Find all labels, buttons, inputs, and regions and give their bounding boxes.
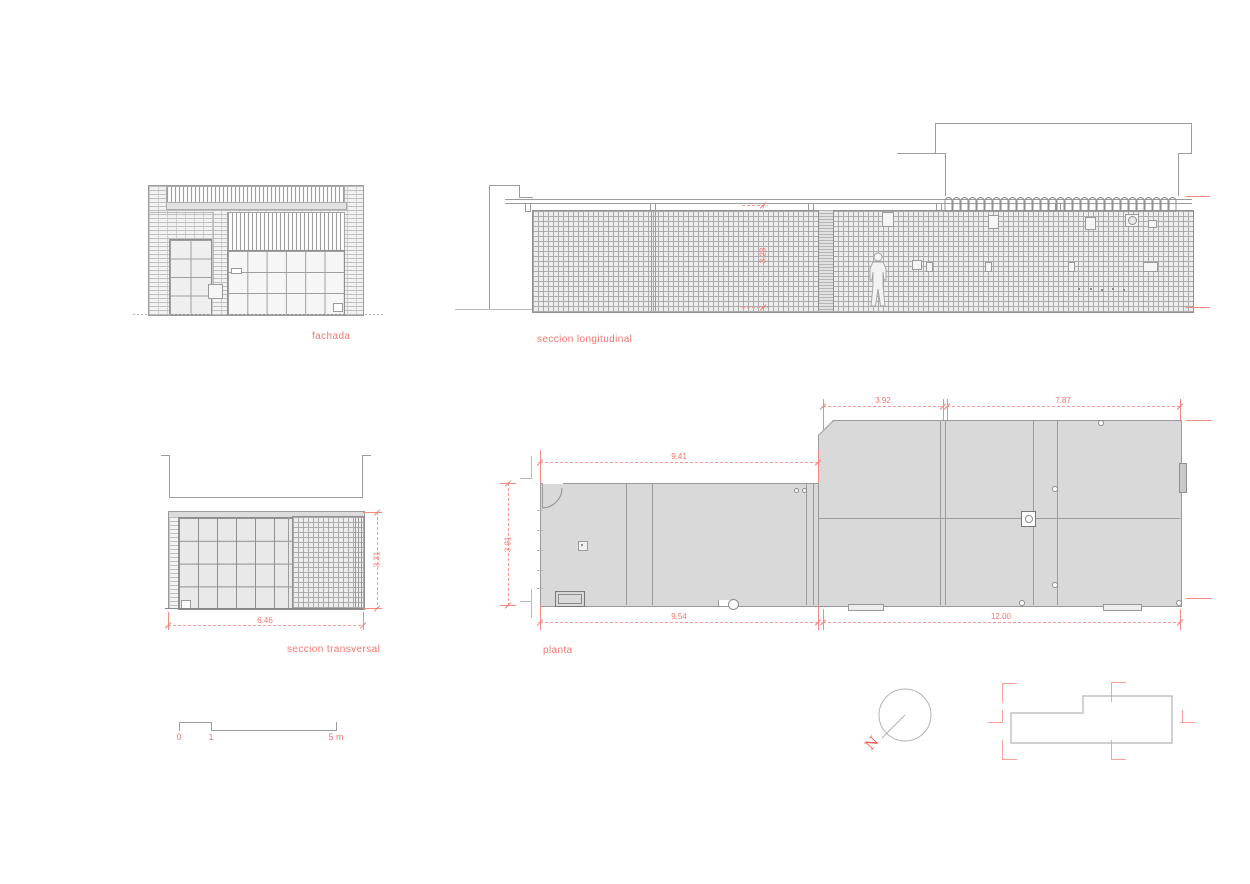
roof-channel-bottom-line (169, 497, 363, 498)
cut-column (818, 210, 834, 311)
door-leaf-line (542, 483, 543, 508)
wall-fixture (1148, 220, 1157, 228)
facade-top-louver-band (166, 186, 345, 203)
roof-channel-right-line (362, 455, 363, 497)
plan-small-circle (794, 488, 799, 493)
dim-line-plan-1200 (823, 622, 1180, 623)
scale-tick-5 (336, 722, 337, 731)
dim-text-plan-941: 9.41 (659, 452, 699, 461)
window-tick (537, 530, 543, 531)
facade-window-louvers (227, 212, 345, 251)
wall-joint-line (651, 210, 652, 311)
ground-line-left (455, 309, 533, 310)
plan-label: planta (543, 645, 573, 656)
scale-tick-0 (179, 722, 180, 731)
dim-text-plan-787: 7.87 (1043, 396, 1083, 405)
cut-wall-left-line (489, 185, 490, 309)
plan-mid-line (818, 518, 1180, 519)
monitor-drop-left-line (945, 153, 946, 196)
section-divider-line (288, 517, 289, 608)
wall-dot (1078, 288, 1080, 290)
keyplan-outline (1011, 696, 1172, 743)
facade-vent (333, 303, 343, 312)
keyplan-mark (1002, 759, 1017, 760)
dim-text-section-height: 3.23 (759, 241, 768, 271)
dim-text-plan-1200: 12.00 (981, 612, 1021, 621)
transversal-section-view: 6.46 3.31 seccion transversal (150, 440, 410, 665)
dim-text-plan-391: 3.91 (504, 530, 513, 560)
wall-outlet (926, 262, 933, 272)
window-tick (537, 570, 543, 571)
longitudinal-section-label: seccion longitudinal (537, 334, 632, 345)
dim-ext-line (540, 605, 541, 630)
drawing-sheet: fachada (0, 0, 1250, 884)
wall-dot (1101, 289, 1103, 291)
dim-ext-line (947, 399, 948, 420)
keyplan-mark (988, 722, 1003, 723)
keyplan-mark (1111, 759, 1126, 760)
party-wall-line (806, 483, 807, 605)
monitor-step-right-line (1178, 153, 1192, 154)
facade-lintel-band (166, 202, 347, 210)
north-letter: N (862, 729, 887, 754)
roof-channel-left-line (169, 455, 170, 497)
monitor-left-line (935, 123, 936, 153)
plan-column-box (1021, 511, 1036, 527)
dim-ext-line (742, 307, 768, 308)
interior-wall-line (945, 420, 946, 605)
dim-text-plan-954: 9.54 (659, 612, 699, 621)
plan-small-circle (1019, 600, 1025, 606)
roof-hanger-post (525, 203, 531, 212)
wall-outlet (1068, 262, 1075, 272)
dim-ext-line (1180, 399, 1181, 420)
keyplan-mark (1111, 740, 1112, 760)
keyplan-mark (1002, 683, 1003, 703)
dim-cut-tick-right (1186, 420, 1212, 421)
neighbor-wall-tick (520, 601, 532, 602)
keyplan-mark (1182, 710, 1183, 722)
window-tick (537, 588, 543, 589)
transversal-section-label: seccion transversal (287, 644, 380, 655)
wall-outlet-group (1143, 262, 1158, 272)
neighbor-wall-tick (520, 478, 532, 479)
cut-wall-top-line (489, 185, 519, 186)
plan-view: 9.41 3.92 7.87 3.91 9.54 12.00 plan (500, 390, 1220, 665)
neighbor-wall-mark (531, 456, 532, 479)
dim-line-plan-787 (947, 406, 1180, 407)
scale-label-0: 0 (173, 733, 185, 742)
wall-dot (1112, 288, 1114, 290)
wall-fixture (882, 212, 894, 227)
plan-small-circle (1052, 486, 1058, 492)
dim-ext-line (818, 605, 819, 630)
cut-wall-step-line (519, 197, 533, 198)
interior-wall-line (1057, 420, 1058, 605)
dim-line-plan-392 (823, 406, 943, 407)
dim-cut-tick-right (1186, 307, 1210, 308)
facade-view: fachada (133, 178, 388, 353)
dim-ext-line (168, 612, 169, 630)
wall-dot (1090, 288, 1092, 290)
neighbor-wall-mark (531, 589, 532, 618)
scale-label-1: 1 (205, 733, 217, 742)
dim-ext-line (818, 450, 819, 483)
interior-wall-line (940, 420, 941, 605)
dim-line-plan-954 (540, 622, 818, 623)
dim-ext-line (363, 608, 382, 609)
interior-wall-line (652, 483, 653, 605)
monitor-top-line (935, 123, 1192, 124)
dim-cut-tick-right (1186, 598, 1212, 599)
plan-small-circle (1176, 600, 1182, 606)
keyplan-mark (1002, 683, 1017, 684)
plan-small-circle (1052, 582, 1058, 588)
dim-ext-line (540, 450, 541, 483)
door-opening-gap (542, 482, 563, 484)
downpipe-box (208, 284, 223, 299)
facade-glazed-wall (227, 250, 345, 315)
plan-right-edge-pier (1179, 463, 1187, 493)
wall-dot (1123, 289, 1125, 291)
wall-fixture (988, 215, 999, 229)
plan-right-wing (818, 420, 1182, 607)
dim-ext-line (363, 612, 364, 630)
keyplan-mark (1180, 722, 1195, 723)
plan-small-circle (1098, 420, 1104, 426)
desk-inner (558, 594, 582, 604)
monitor-step-left-line (897, 153, 945, 154)
plan-desk (555, 591, 585, 607)
north-needle (882, 715, 905, 738)
downpipe-vertical (213, 212, 214, 284)
dim-cut-tick-right (1186, 196, 1210, 197)
facade-entrance-door (169, 239, 212, 315)
monitor-right-line (1191, 123, 1192, 153)
monitor-drop-right-line (1178, 153, 1179, 196)
fixture-dot (581, 544, 583, 546)
plan-fixture (578, 541, 588, 551)
section-glazed-wall (178, 517, 294, 610)
door-handle (231, 268, 242, 274)
roof-channel-flange-right (362, 455, 371, 456)
plan-small-circle (802, 488, 807, 493)
plan-threshold (1103, 604, 1142, 611)
dim-text-plan-392: 3.92 (863, 396, 903, 405)
ground-line (133, 314, 383, 315)
scale-bar: 0 1 5 m (170, 710, 360, 750)
dim-ext-line (363, 512, 382, 513)
wall-fan (1125, 214, 1139, 227)
longitudinal-section-view: 3.23 seccion longitudinal (455, 115, 1215, 355)
keyplan-mark (1002, 740, 1003, 760)
dim-line-plan-941 (540, 462, 818, 463)
section-edge-band (355, 517, 363, 607)
keyplan-mark (1111, 682, 1112, 702)
scale-label-5m: 5 m (322, 733, 350, 742)
north-circle (879, 689, 931, 741)
roof-slab-top-line (505, 199, 1192, 200)
scale-segment-1-5 (211, 730, 336, 731)
keyplan-mark (1111, 682, 1126, 683)
dim-text-transversal-height: 3.31 (373, 545, 382, 575)
dim-line-transversal-width (168, 625, 363, 626)
plan-column-circle (728, 599, 739, 610)
fan-circle (1128, 216, 1137, 225)
column-box-circle (1025, 515, 1033, 523)
downpipe-horizontal (148, 212, 214, 213)
roof-slab-bottom-line (505, 203, 1192, 204)
scale-segment-0-1 (179, 722, 211, 723)
window-tick (537, 550, 543, 551)
wall-joint-line (655, 210, 656, 311)
cut-wall-inner-line (519, 185, 520, 197)
dim-text-transversal-width: 6.46 (240, 616, 290, 625)
window-tick (537, 510, 543, 511)
facade-label: fachada (312, 331, 350, 342)
interior-wall-line (626, 483, 627, 605)
party-wall-line (813, 483, 814, 605)
dim-ext-line (742, 205, 768, 206)
section-base-line (165, 608, 366, 609)
wall-fixture (1085, 217, 1096, 230)
keyplan-mark (1002, 710, 1003, 722)
wall-outlet (912, 260, 922, 270)
wall-outlet (985, 262, 992, 272)
plan-threshold (848, 604, 884, 611)
